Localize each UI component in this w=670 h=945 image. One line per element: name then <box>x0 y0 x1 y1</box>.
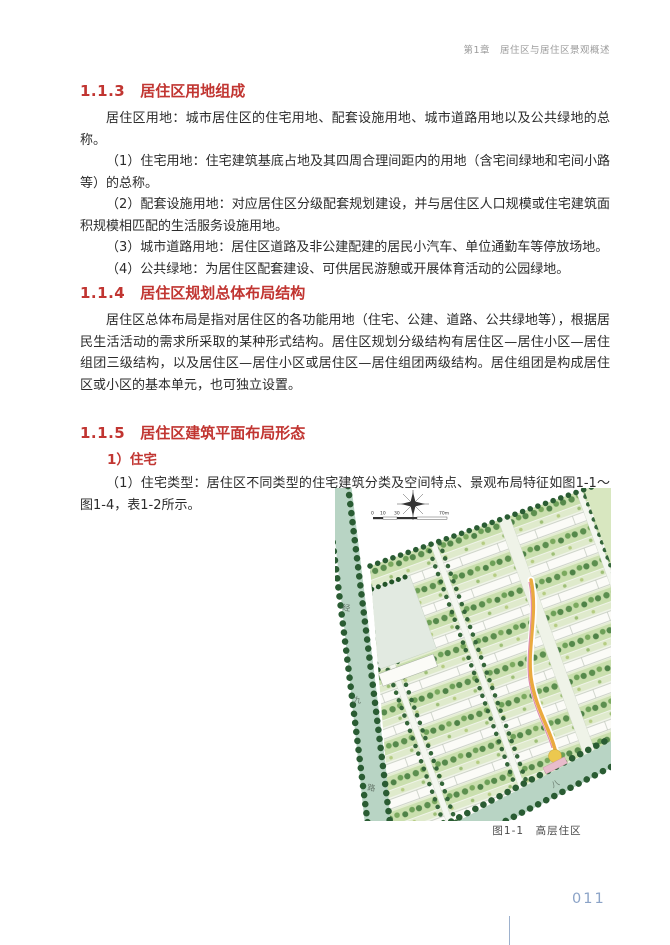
section-number: 1.1.5 <box>80 424 125 442</box>
section-heading: 1.1.5居住区建筑平面布局形态 <box>80 424 610 443</box>
page-content: 1.1.3居住区用地组成 居住区用地：城市居住区的住宅用地、配套设施用地、城市道… <box>80 82 610 520</box>
site-plan-image: 0 10 30 70m 经 九 路 八 <box>335 488 611 821</box>
paragraph: （2）配套设施用地：对应居住区分级配套规划建设，并与居住区人口规模或住宅建筑面积… <box>80 194 610 237</box>
scale-tick: 0 <box>371 511 374 517</box>
subsection-heading: 1）住宅 <box>80 450 610 470</box>
paragraph: （3）城市道路用地：居住区道路及非公建配建的居民小汽车、单位通勤车等停放场地。 <box>80 237 610 259</box>
section-1-1-3: 1.1.3居住区用地组成 居住区用地：城市居住区的住宅用地、配套设施用地、城市道… <box>80 82 610 280</box>
section-number: 1.1.3 <box>80 82 125 100</box>
section-1-1-4: 1.1.4居住区规划总体布局结构 居住区总体布局是指对居住区的各功能用地（住宅、… <box>80 284 610 396</box>
book-page: 第1章 居住区与居住区景观概述 1.1.3居住区用地组成 居住区用地：城市居住区… <box>0 0 670 945</box>
figure-caption: 图1-1 高层住区 <box>452 823 622 838</box>
paragraph: 居住区用地：城市居住区的住宅用地、配套设施用地、城市道路用地以及公共绿地的总称。 <box>80 108 610 151</box>
scale-tick: 70m <box>439 511 449 517</box>
page-number: 011 <box>572 891 606 907</box>
paragraph: 居住区总体布局是指对居住区的各功能用地（住宅、公建、道路、公共绿地等），根据居民… <box>80 310 610 396</box>
street-name-char: 经 <box>342 602 351 613</box>
running-head: 第1章 居住区与居住区景观概述 <box>463 42 610 56</box>
compass-icon <box>397 490 429 520</box>
section-title: 居住区用地组成 <box>140 82 245 100</box>
scale-bar: 0 10 30 70m <box>371 511 449 520</box>
street-name-char: 九 <box>353 695 362 705</box>
scale-tick: 10 <box>380 511 386 517</box>
street-name-char: 路 <box>367 782 376 793</box>
section-title: 居住区建筑平面布局形态 <box>140 424 305 442</box>
section-number: 1.1.4 <box>80 284 125 302</box>
section-heading: 1.1.4居住区规划总体布局结构 <box>80 284 610 303</box>
footer-rule <box>509 916 510 945</box>
paragraph: （4）公共绿地：为居住区配套建设、可供居民游憩或开展体育活动的公园绿地。 <box>80 259 610 281</box>
section-heading: 1.1.3居住区用地组成 <box>80 82 610 101</box>
paragraph: （1）住宅用地：住宅建筑基底占地及其四周合理间距内的用地（含宅间绿地和宅间小路等… <box>80 151 610 194</box>
section-title: 居住区规划总体布局结构 <box>140 284 305 302</box>
scale-tick: 30 <box>394 511 400 517</box>
